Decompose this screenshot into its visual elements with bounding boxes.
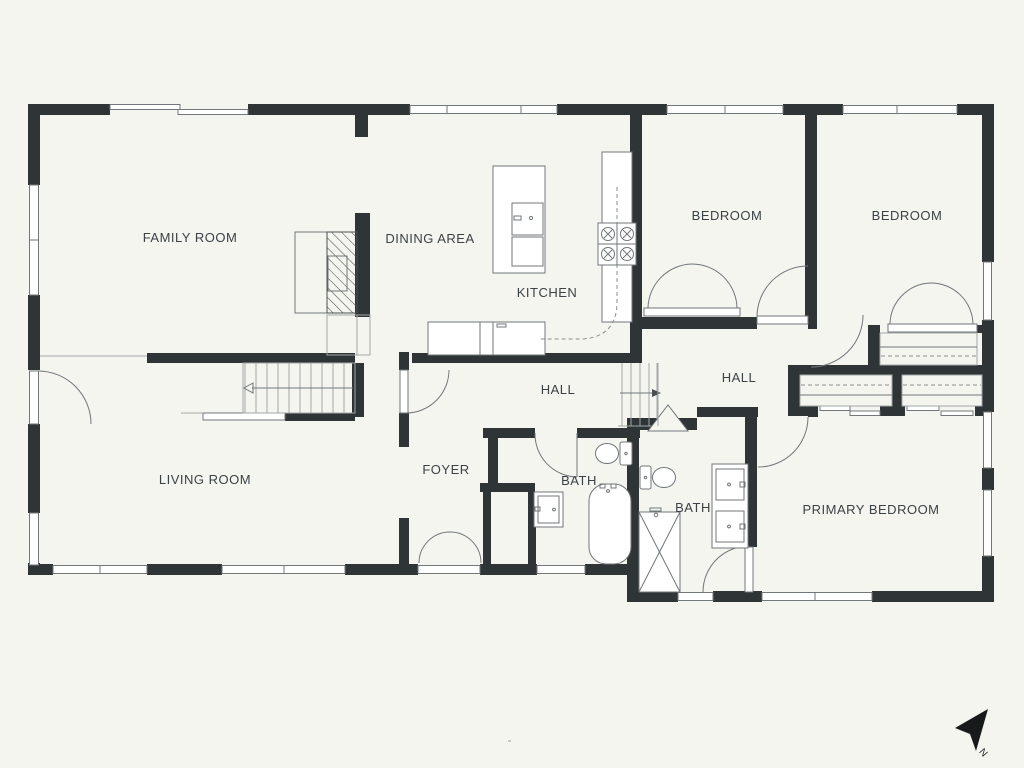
- room-label-bedroom-1: BEDROOM: [692, 208, 763, 223]
- floor-plan-page: FAMILY ROOM DINING AREA KITCHEN BEDROOM …: [0, 0, 1024, 768]
- room-label-bath-2: BATH: [675, 500, 711, 515]
- entry-side-door: [30, 371, 92, 424]
- bedroom1-door: [757, 266, 808, 317]
- main-staircase: [181, 363, 355, 413]
- bath1-toilet-icon: [596, 442, 633, 465]
- primary-bedroom-door: [758, 417, 808, 467]
- room-label-kitchen: KITCHEN: [517, 285, 578, 300]
- room-label-dining-area: DINING AREA: [385, 231, 474, 246]
- primary-closet-east-interior: [902, 375, 982, 406]
- interior-walls: [147, 115, 988, 602]
- room-label-hall-2: HALL: [722, 370, 757, 385]
- stove-icon: [598, 223, 636, 265]
- primary-closet-west-interior: [800, 375, 892, 406]
- north-arrow-icon: N: [955, 709, 989, 759]
- bath2-door: [703, 546, 753, 592]
- compass-n-label: N: [976, 747, 989, 760]
- floor-plan-svg: FAMILY ROOM DINING AREA KITCHEN BEDROOM …: [0, 0, 1024, 768]
- bathtub-icon: [589, 484, 631, 564]
- bedroom2-door: [811, 315, 863, 367]
- room-label-bedroom-2: BEDROOM: [872, 208, 943, 223]
- room-label-living-room: LIVING ROOM: [159, 472, 251, 487]
- bath2-toilet-icon: [640, 466, 676, 489]
- bath2-double-vanity-icon: [712, 464, 748, 548]
- shower-icon: [639, 508, 680, 592]
- entry-double-door: [419, 532, 481, 563]
- foyer-hall-door: [400, 370, 449, 413]
- bedroom1-closet-doors: [648, 264, 737, 308]
- room-label-hall-1: HALL: [541, 382, 576, 397]
- bath1-sink-icon: [534, 492, 563, 527]
- artifact-dot: [508, 740, 511, 742]
- room-label-bath-1: BATH: [561, 473, 597, 488]
- room-label-foyer: FOYER: [422, 462, 469, 477]
- bedroom2-closet-interior: [880, 333, 977, 365]
- room-label-family-room: FAMILY ROOM: [143, 230, 238, 245]
- room-label-primary-bedroom: PRIMARY BEDROOM: [802, 502, 939, 517]
- bath1-door: [535, 433, 577, 477]
- kitchen-island-icon: [493, 166, 545, 273]
- bedroom2-closet-doors: [890, 283, 973, 324]
